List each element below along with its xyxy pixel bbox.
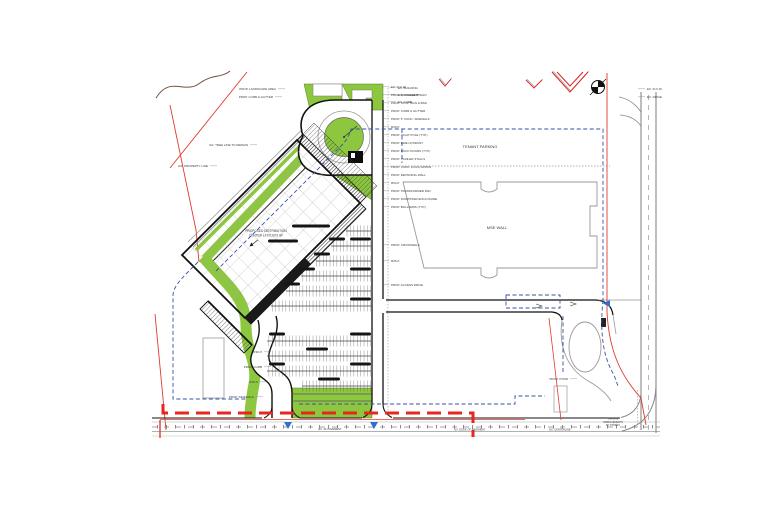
callout-label: PROP. 5' CONC. SIDEWALK (391, 117, 430, 121)
mse-wall-label: MSE WALL (487, 225, 508, 230)
curb-island (329, 238, 345, 241)
curb-island (284, 283, 300, 286)
tenant-parking-label: TENANT PARKING (463, 144, 498, 149)
curb-island (292, 225, 330, 228)
callout-label: PROP. CONC. DOCK APRON (391, 165, 431, 169)
callout-label: PROP. TRAILER STALLS (391, 157, 425, 161)
curb-island (350, 238, 371, 241)
curb-island (350, 333, 371, 336)
curb-island (269, 363, 285, 366)
enclosure-gate (351, 153, 355, 158)
curb-island (268, 240, 298, 243)
callout-label: EX. CURB (398, 100, 412, 104)
drawing-background (0, 0, 780, 517)
callout-label: EX. PROPERTY LINE (178, 164, 208, 168)
curb-island (350, 268, 371, 271)
curb-island (314, 253, 330, 256)
callout-label: PROP. TRANSFORMER PAD (391, 189, 432, 193)
callout-label: PROP. DUMPSTER ENCLOSURE (391, 197, 437, 201)
callout-label: PROP. CROSSWALK (391, 243, 420, 247)
curb-island (299, 268, 315, 271)
callout-label: R30.0' (391, 125, 400, 129)
site-plan-page: MSE WALL TENANT PARKING (0, 0, 780, 517)
callout-label: PROP. CURB & GUTTER (239, 95, 274, 99)
curb-island (350, 298, 371, 301)
curb-island (350, 363, 371, 366)
callout-label: PROP. ACCESS DRIVE (391, 283, 423, 287)
callout-label: R30.0' (253, 350, 262, 354)
callout-label: PROP. BOLLARDS (TYP.) (391, 205, 426, 209)
road-label: EX. 24' PAVEMENT (319, 427, 342, 431)
curb-island (269, 333, 285, 336)
building-label-line1: PROPOSED DISTRIBUTION (245, 229, 287, 233)
callout-label: PROP. LANDSCAPE AREA (239, 87, 276, 91)
callout-label: PROP. CURB & GUTTER (391, 109, 426, 113)
callout-label: R10.0' (249, 380, 258, 384)
pad-outline (313, 84, 342, 96)
callout-label: PROP. RETAINING WALL (391, 173, 426, 177)
callout-label: EX. BUILDING (398, 86, 419, 90)
callout-label: PROP. LIGHT POLE (TYP.) (391, 133, 428, 137)
center-point (343, 136, 345, 138)
site-plan-canvas: MSE WALL TENANT PARKING (0, 0, 780, 517)
corner-note-line: BY OTHERS (606, 424, 620, 427)
building-label-line2: CENTER ±XXX,XXX SF (249, 234, 283, 238)
callout-label: PROP. POND (550, 377, 569, 381)
callout-label: PROP. FIRE HYDRANT (391, 141, 423, 145)
road-label: EX. CENTERLINE (549, 428, 571, 432)
callout-label: R54.0' (391, 181, 400, 185)
curb-island (318, 378, 340, 381)
callout-label: PROP. SIDEWALK (229, 395, 254, 399)
road-label: EX. EDGE OF PAVEMENT (454, 428, 486, 432)
callout-label: PROP. CURB (244, 365, 262, 369)
callout-label: EX. DRIVE (647, 95, 662, 99)
callout-label: EX. PAVEMENT (398, 93, 420, 97)
curb-island (306, 348, 328, 351)
callout-label: EX. TREE LINE TO REMAIN (209, 143, 248, 147)
callout-label: R25.0' (391, 259, 400, 263)
callout-label: PROP. DOCK DOORS (TYP.) (391, 149, 430, 153)
callout-label: EX. R.O.W. (647, 87, 663, 91)
